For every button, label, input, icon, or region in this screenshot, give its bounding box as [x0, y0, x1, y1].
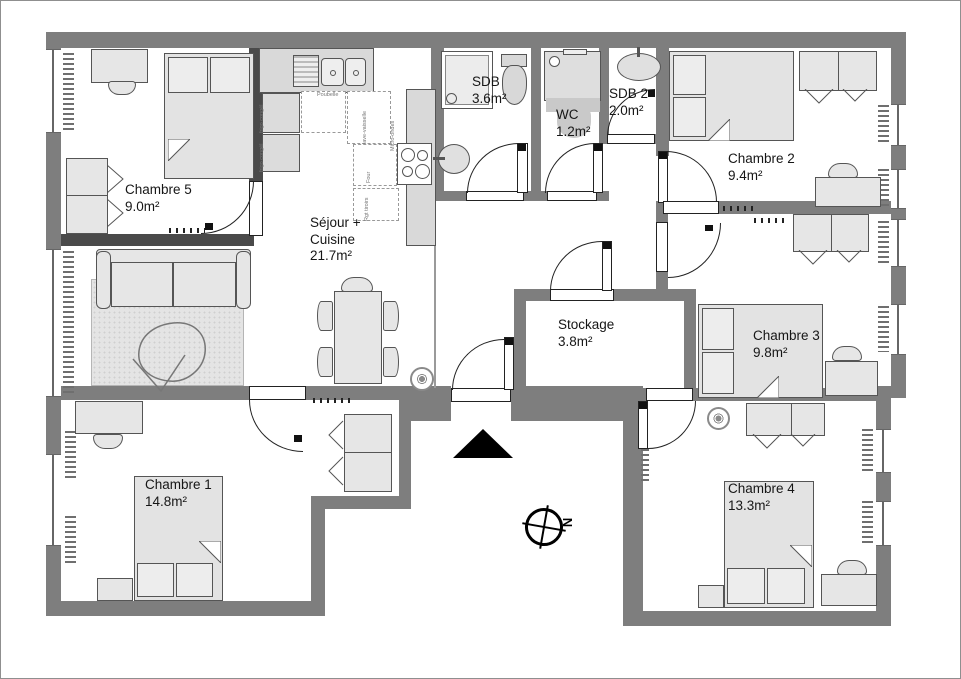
dishwasher-label: lave-vaisselle	[363, 94, 369, 144]
chair-ch1	[93, 434, 123, 449]
wardrobe-ch2-divider	[838, 51, 839, 91]
microwave-label: Micro-ondes	[391, 103, 397, 151]
wall-left-seg3	[46, 397, 61, 454]
window-ch4-right-2	[876, 501, 891, 546]
wall-stockage-left	[514, 289, 526, 389]
ceiling-light-symbol-ch4	[707, 407, 730, 430]
floor-plan: Poubelle frigo congél frigo congél lave-…	[0, 0, 961, 679]
room-label-chambre-2: Chambre 29.4m²	[728, 151, 795, 184]
room-label-stockage: Stockage3.8m²	[558, 317, 614, 350]
door-hinge-wc	[594, 144, 602, 151]
vent-marks-ch3	[754, 218, 786, 223]
sink-tap-sdb2	[637, 47, 640, 57]
radiator-sejour	[63, 251, 74, 395]
door-hinge-ch2	[659, 152, 667, 159]
door-opening-ch1	[249, 386, 306, 400]
ceiling-light-symbol-sejour	[410, 367, 434, 391]
bed-fold-ch1	[199, 541, 221, 563]
vent-marks-ch2	[723, 206, 755, 211]
kitchen-trash-label: Poubelle	[317, 93, 338, 99]
wall-left-seg2	[46, 133, 61, 249]
wardrobe-ch3-divider	[831, 214, 832, 252]
coffee-table-blob	[129, 319, 221, 393]
kitchen-sink-drain-2	[353, 70, 359, 76]
wall-left-seg1	[46, 32, 61, 49]
stove-burner-2	[417, 150, 428, 161]
wall-ch1-right	[311, 509, 325, 616]
oven-label: Four	[367, 153, 373, 183]
dining-chair-right-2	[383, 347, 399, 377]
window-sejour-left	[46, 249, 61, 397]
room-label-wc: WC1.2m²	[556, 107, 591, 140]
wardrobe-ch3-doors-icon	[797, 250, 867, 266]
fridge-freezer-bottom	[262, 134, 300, 172]
wardrobe-ch1-doors-icon	[327, 419, 345, 489]
fridge-top-label: frigo congél	[260, 95, 266, 133]
wall-right-seg4	[891, 267, 906, 304]
door-opening-ch2	[663, 201, 719, 214]
sofa-cushion-1	[111, 262, 173, 307]
radiator-ch3-a	[878, 221, 889, 265]
room-label-chambre-4: Chambre 413.3m²	[728, 481, 795, 514]
fridge-bottom-label: frigo congél	[260, 135, 266, 172]
bed-fold-ch3	[757, 376, 779, 398]
stove	[397, 143, 432, 185]
sofa-cushion-2	[173, 262, 236, 307]
radiator-ch4-a	[862, 429, 873, 473]
radiator-ch5	[63, 53, 74, 131]
wall-ch1-nook-h	[311, 496, 411, 509]
wardrobe-ch4-doors-icon	[751, 434, 821, 450]
radiator-ch4-door	[641, 449, 649, 483]
stove-burner-4	[415, 164, 430, 179]
vent-marks-ch1	[313, 398, 351, 403]
pillow-ch3-1	[702, 308, 734, 350]
sink-sdb2	[617, 53, 661, 81]
pillow-ch2-1	[673, 55, 706, 95]
wall-bottom-ch1	[46, 601, 325, 616]
chair-ch4	[837, 560, 867, 575]
wall-top	[46, 32, 906, 48]
window-ch2-right-1	[891, 104, 906, 146]
room-label-chambre-3: Chambre 39.8m²	[753, 328, 820, 361]
wall-sdb-bottom-l	[434, 191, 466, 201]
pillow-ch4-2	[767, 568, 805, 604]
chair-ch5	[108, 81, 136, 95]
door-hinge-ch3	[705, 225, 713, 231]
nightstand-ch1	[97, 578, 133, 601]
wardrobe-ch4	[746, 403, 825, 436]
wardrobe-ch5-divider	[66, 195, 108, 196]
desk-ch1	[75, 401, 143, 434]
door-arc-wc	[545, 143, 595, 193]
door-hinge-ch5	[205, 223, 213, 230]
sink-tap-sdb	[433, 157, 445, 160]
radiator-ch3-b	[878, 306, 889, 352]
dining-chair-right-1	[383, 301, 399, 331]
room-label-sdb: SDB3.6m²	[472, 74, 507, 107]
wardrobe-ch1-divider	[344, 452, 392, 453]
dining-chair-left-2	[317, 347, 333, 377]
wall-sdb-wc	[531, 46, 541, 196]
door-hinge-stockage	[603, 242, 611, 249]
room-label-chambre-1: Chambre 114.8m²	[145, 477, 212, 510]
window-ch2-right-2	[891, 169, 906, 209]
stove-burner-1	[401, 148, 415, 162]
radiator-ch1-a	[65, 431, 76, 479]
wardrobe-ch2-doors-icon	[803, 89, 873, 105]
wall-right-lower2	[876, 473, 891, 501]
radiator-ch1-b	[65, 516, 76, 566]
washing-machine-detail	[563, 49, 587, 55]
dining-chair-left-1	[317, 301, 333, 331]
room-label-sejour-cuisine: Séjour +Cuisine21.7m²	[310, 215, 361, 265]
door-arc-ch1	[249, 400, 303, 452]
chair-ch3	[832, 346, 862, 361]
fridge-freezer-top	[262, 93, 300, 133]
dining-chair-top	[341, 277, 373, 292]
pillow-ch1-2	[176, 563, 213, 597]
stove-burner-3	[402, 166, 413, 177]
door-opening-ch3	[656, 222, 668, 272]
vent-marks-ch5	[169, 228, 205, 233]
compass-north-label: N	[560, 518, 575, 527]
radiator-ch4-b	[862, 501, 873, 546]
room-label-sdb2: SDB 22.0m²	[609, 86, 648, 119]
wall-bottom-ch4	[636, 611, 891, 626]
wall-south-a	[399, 386, 451, 421]
sofa-arm-right	[236, 251, 251, 309]
window-ch3-right-1	[891, 219, 906, 267]
door-hinge-ch1	[294, 435, 302, 442]
wall-ch3-left-a	[656, 214, 668, 222]
bed-fold-ch5	[168, 139, 190, 161]
washing-machine-knob	[549, 56, 560, 67]
door-arc-sdb	[467, 143, 519, 193]
kitchen-dishwasher-dashed	[347, 91, 391, 144]
door-arc-ch4	[648, 401, 696, 449]
kitchen-storage-label: Rgt tiroirs	[365, 191, 371, 221]
nightstand-ch4	[698, 585, 724, 608]
door-hinge-sdb2	[648, 90, 655, 97]
pillow-ch5-1	[168, 57, 208, 93]
door-arc-ch3	[668, 223, 721, 278]
window-ch1-left	[46, 454, 61, 546]
window-ch4-right-1	[876, 429, 891, 473]
sofa-back	[96, 249, 251, 263]
door-opening-ch4	[646, 388, 693, 401]
pillow-ch2-2	[673, 97, 706, 137]
wardrobe-ch5	[66, 158, 108, 234]
door-arc-stockage	[550, 241, 602, 291]
dining-table	[334, 291, 382, 384]
door-arc-ch2	[666, 151, 717, 202]
wardrobe-ch4-divider	[791, 403, 792, 436]
wall-ch5-bottom	[61, 234, 254, 246]
wall-right-seg3	[891, 209, 906, 219]
entrance-arrow-icon	[453, 429, 513, 458]
shower-drain-sdb	[446, 93, 457, 104]
wall-right-seg1	[891, 32, 906, 104]
window-ch5-left	[46, 49, 61, 133]
bed-fold-ch4	[790, 545, 812, 567]
sofa-arm-left	[96, 251, 111, 309]
entrance-door-opening	[451, 388, 511, 402]
window-ch3-right-2	[891, 304, 906, 355]
desk-ch4	[821, 574, 877, 606]
desk-ch2	[815, 177, 881, 207]
chair-ch2	[828, 163, 858, 178]
door-hinge-ch4	[639, 402, 647, 409]
kitchen-sink-drain-1	[330, 70, 336, 76]
wall-stockage-top-r	[614, 289, 691, 301]
pillow-ch1-1	[137, 563, 174, 597]
pillow-ch3-2	[702, 352, 734, 394]
door-hinge-sdb	[518, 144, 526, 151]
wall-stockage-right	[684, 289, 696, 391]
wall-right-lower1	[876, 398, 891, 429]
pillow-ch5-2	[210, 57, 250, 93]
entrance-door-hinge	[505, 338, 513, 345]
kitchen-drainboard	[293, 55, 319, 87]
room-label-chambre-5: Chambre 59.0m²	[125, 182, 192, 215]
entrance-door-arc	[452, 339, 504, 390]
bed-fold-ch2	[708, 119, 730, 141]
wardrobe-ch5-doors-icon	[107, 163, 125, 229]
wardrobe-ch1	[344, 414, 392, 492]
wall-right-seg2	[891, 146, 906, 169]
desk-ch3	[825, 361, 878, 396]
desk-ch5	[91, 49, 148, 83]
pillow-ch4-1	[727, 568, 765, 604]
radiator-ch2-a	[878, 105, 889, 145]
wall-ch1-nook-v	[399, 421, 411, 498]
